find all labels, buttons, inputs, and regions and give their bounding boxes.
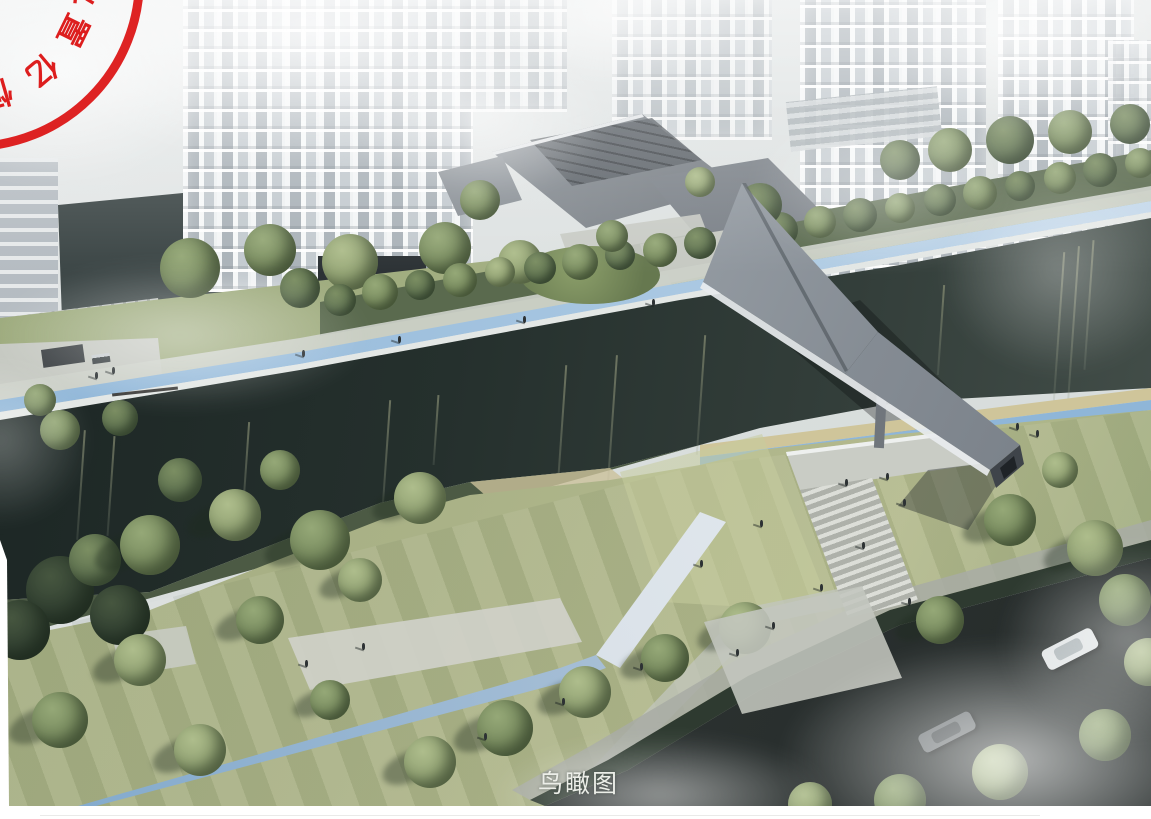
- figure-caption: 鸟瞰图: [538, 764, 648, 798]
- top-glare: [0, 0, 1151, 806]
- page-bottom-margin: [0, 806, 1151, 819]
- document-page: 鸟瞰图 恒 亿 置 业: [0, 0, 1151, 819]
- aerial-rendering: 鸟瞰图: [0, 0, 1151, 806]
- scan-artifact-line: [40, 815, 1040, 816]
